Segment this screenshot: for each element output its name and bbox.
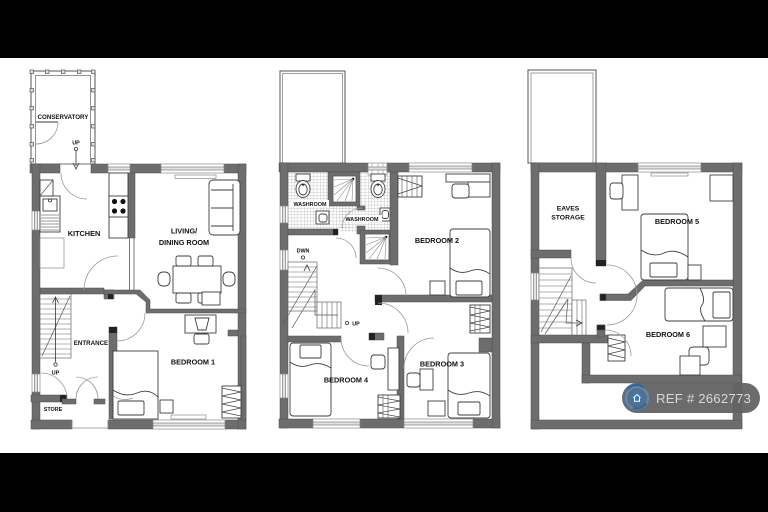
svg-text:ENTRANCE: ENTRANCE [74,340,108,347]
svg-text:CONSERVATORY: CONSERVATORY [38,114,90,121]
svg-text:BEDROOM 2: BEDROOM 2 [415,236,459,245]
svg-text:DINING ROOM: DINING ROOM [159,238,209,247]
svg-text:LIVING/: LIVING/ [171,227,197,236]
svg-text:REF # 2662773: REF # 2662773 [656,391,751,406]
svg-text:BEDROOM 1: BEDROOM 1 [171,358,215,367]
svg-text:KITCHEN: KITCHEN [68,229,100,238]
svg-text:UP: UP [72,141,80,147]
svg-text:DWN: DWN [297,249,310,255]
svg-text:UP: UP [352,322,360,328]
svg-text:BEDROOM 3: BEDROOM 3 [420,360,464,369]
svg-text:WASHROOM: WASHROOM [346,217,379,223]
svg-text:BEDROOM 5: BEDROOM 5 [655,217,699,226]
svg-text:EAVES: EAVES [557,206,580,213]
svg-text:STORE: STORE [44,407,63,413]
svg-text:STORAGE: STORAGE [551,215,585,222]
svg-text:WASHROOM: WASHROOM [294,202,327,208]
svg-text:BEDROOM 6: BEDROOM 6 [646,330,690,339]
svg-text:BEDROOM 4: BEDROOM 4 [324,376,369,385]
